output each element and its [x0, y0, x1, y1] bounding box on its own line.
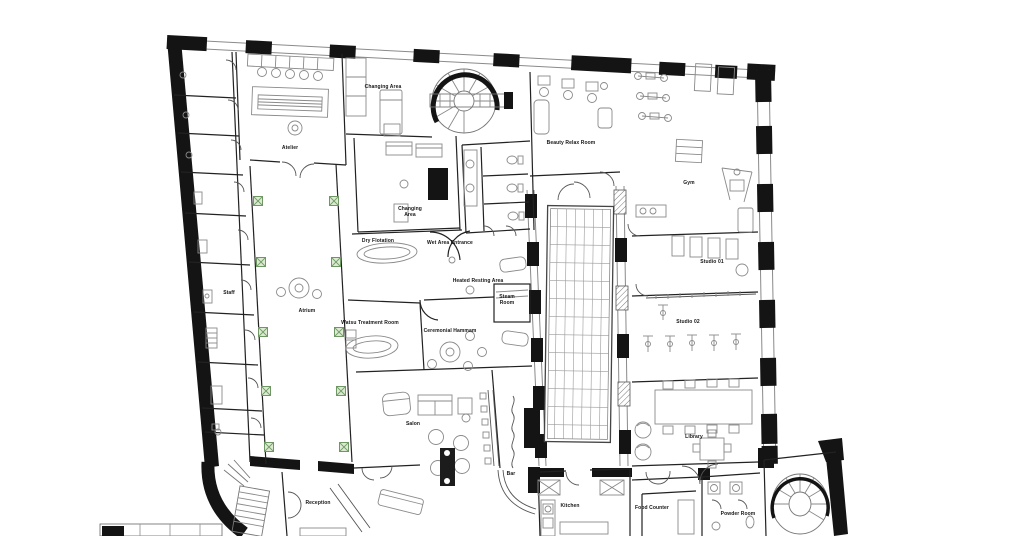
planter-icon — [253, 196, 263, 206]
spiral-stair-bottom-icon — [772, 474, 828, 534]
planter-icon — [261, 386, 271, 396]
planter-icon — [336, 386, 346, 396]
planter-icon — [258, 327, 268, 337]
skylight-grid — [544, 206, 613, 443]
planter-icon — [256, 257, 266, 267]
planter-icon — [329, 196, 339, 206]
spiral-stair-icon — [430, 69, 513, 133]
planter-icon — [264, 442, 274, 452]
gym-equipment — [635, 64, 754, 232]
door-arcs — [226, 60, 747, 518]
bike-icons — [643, 305, 741, 352]
floorplan-canvas: Changing AreaAtelierBeauty Relax RoomGym… — [0, 0, 1024, 536]
planter-icon — [339, 442, 349, 452]
planter-icon — [334, 327, 344, 337]
floorplan-drawing — [0, 0, 1024, 536]
planter-icon — [331, 257, 341, 267]
